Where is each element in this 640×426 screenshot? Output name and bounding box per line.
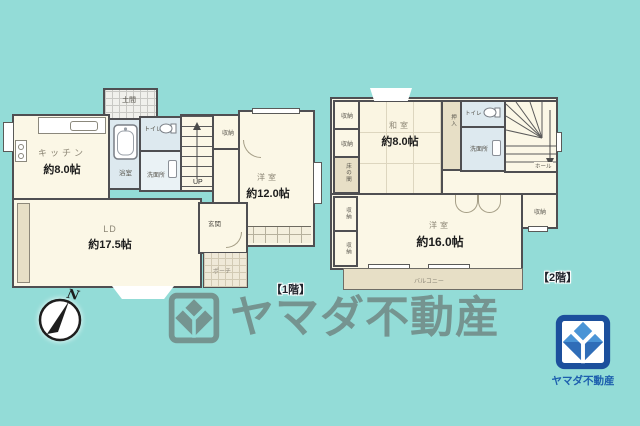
room-washroom-2f: 洗面所 [460,126,506,172]
oshiire: 押入 [441,100,462,171]
room-toilet-1f: トイレ [139,116,182,152]
vanity-icon [492,140,501,156]
floorplan-2f: 収納 収納 床の間 和室 約8.0帖 押入 トイレ 洗面所 [320,80,640,310]
room-washroom-1f: 洗面所 [139,150,182,192]
porch: ポーチ [203,252,248,288]
closet-2f-right: 収納 [521,193,558,229]
closet-2f-right-label: 収納 [534,207,546,216]
compass: N [33,288,103,348]
bathtub-icon [113,124,138,160]
tokonoma: 床の間 [333,156,360,194]
toilet-icon [483,107,501,118]
closet-2f-left1-label: 収納 [344,207,352,220]
washroom-2f-label: 洗面所 [470,144,488,153]
ld-side-strip [17,203,30,283]
burner-icon [18,153,24,159]
closet-2f-b: 収納 [333,128,360,158]
entrance-label: 玄関 [208,218,221,228]
watermark-logo-icon [168,292,220,344]
room-bedroom-1f [238,110,315,247]
bath-label: 浴室 [119,167,132,177]
balcony-label: バルコニー [414,276,444,285]
stairs-1f: UP [180,114,214,192]
room-toilet-2f: トイレ [460,100,506,128]
closet-1f-label: 収納 [222,128,234,137]
closet-2f-left2: 収納 [333,230,358,267]
closet-2f-left2-label: 収納 [344,242,352,255]
stairs-2f-pattern [506,102,556,171]
company-logo-icon [554,314,612,370]
vanity-icon [168,160,177,178]
washroom-1f-label: 洗面所 [147,170,165,179]
room-tatami [358,100,443,196]
balcony: バルコニー [343,268,523,290]
kitchen-sink-icon [70,121,98,131]
tokonoma-label: 床の間 [344,163,352,183]
stairs-2f [504,100,558,173]
room-bath: 浴室 [108,118,141,190]
floor2-caption: 【2階】 [538,269,577,285]
bedroom-1f-closet [242,226,311,243]
oshiire-label: 押入 [449,114,457,127]
toilet-icon [159,123,177,134]
closet-2f-right-window [528,226,548,232]
closet-2f-b-label: 収納 [341,139,353,148]
stairs-2f-window [556,132,562,152]
toilet-2f-label: トイレ [465,109,482,117]
porch-label: ポーチ [213,266,231,275]
room-living-dining [12,198,202,288]
closet-2f-a: 収納 [333,100,360,130]
company-logo: ヤマダ不動産 [546,314,626,390]
floorplan-1f: 土間 キッチン 約8.0帖 浴室 トイレ 洗面所 [0,0,330,310]
company-logo-text: ヤマダ不動産 [546,373,620,388]
ld-bay-window [112,286,174,299]
stairs-up-arrow [182,116,212,190]
compass-icon [33,293,87,347]
doma-label: 土間 [122,95,136,105]
tatami-bay-window [370,88,412,101]
kitchen-stove-icon [15,140,27,162]
watermark-company-text: ヤマダ不動産 [230,296,500,340]
bedroom-1f-door-arc [243,140,261,158]
entrance-door-arc [226,232,242,248]
kitchen-bay-window [3,122,14,152]
watermark: ヤマダ不動産 [168,292,500,344]
room-entrance: 玄関 [198,202,248,254]
burner-icon [18,144,24,150]
closet-2f-left1: 収納 [333,196,358,232]
bedroom-1f-top-window [252,108,300,114]
closet-2f-a-label: 収納 [341,111,353,120]
